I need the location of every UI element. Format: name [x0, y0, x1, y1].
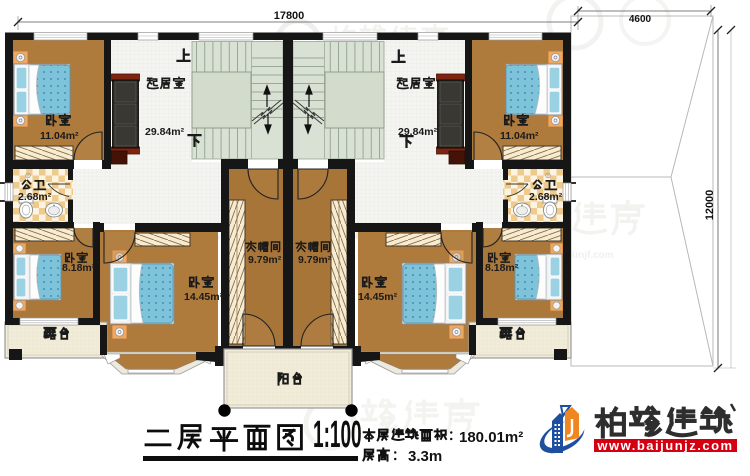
svg-text:unjf.com: unjf.com: [572, 250, 614, 261]
svg-text:2.68m²: 2.68m²: [529, 191, 563, 203]
svg-text:14.45m²: 14.45m²: [358, 291, 398, 303]
svg-text:2.68m²: 2.68m²: [18, 191, 52, 203]
svg-text:11.04m²: 11.04m²: [40, 130, 79, 142]
svg-text:1:100: 1:100: [313, 414, 362, 456]
svg-text:14.45m²: 14.45m²: [184, 291, 224, 303]
svg-text:8.18m²: 8.18m²: [62, 262, 96, 274]
svg-text:9.79m²: 9.79m²: [298, 254, 332, 266]
svg-text:3.3m: 3.3m: [408, 448, 442, 465]
svg-text:180.01m²: 180.01m²: [459, 429, 523, 446]
svg-text:9.79m²: 9.79m²: [248, 254, 282, 266]
svg-text:：: ：: [392, 448, 405, 463]
svg-text:17800: 17800: [274, 10, 305, 22]
svg-text:12000: 12000: [704, 190, 716, 221]
svg-text:4600: 4600: [629, 14, 652, 25]
svg-text:8.18m²: 8.18m²: [485, 262, 519, 274]
svg-text:www.baijunjz.com: www.baijunjz.com: [596, 438, 733, 453]
svg-text:29.84m²: 29.84m²: [145, 126, 185, 138]
svg-text:11.04m²: 11.04m²: [500, 130, 539, 142]
